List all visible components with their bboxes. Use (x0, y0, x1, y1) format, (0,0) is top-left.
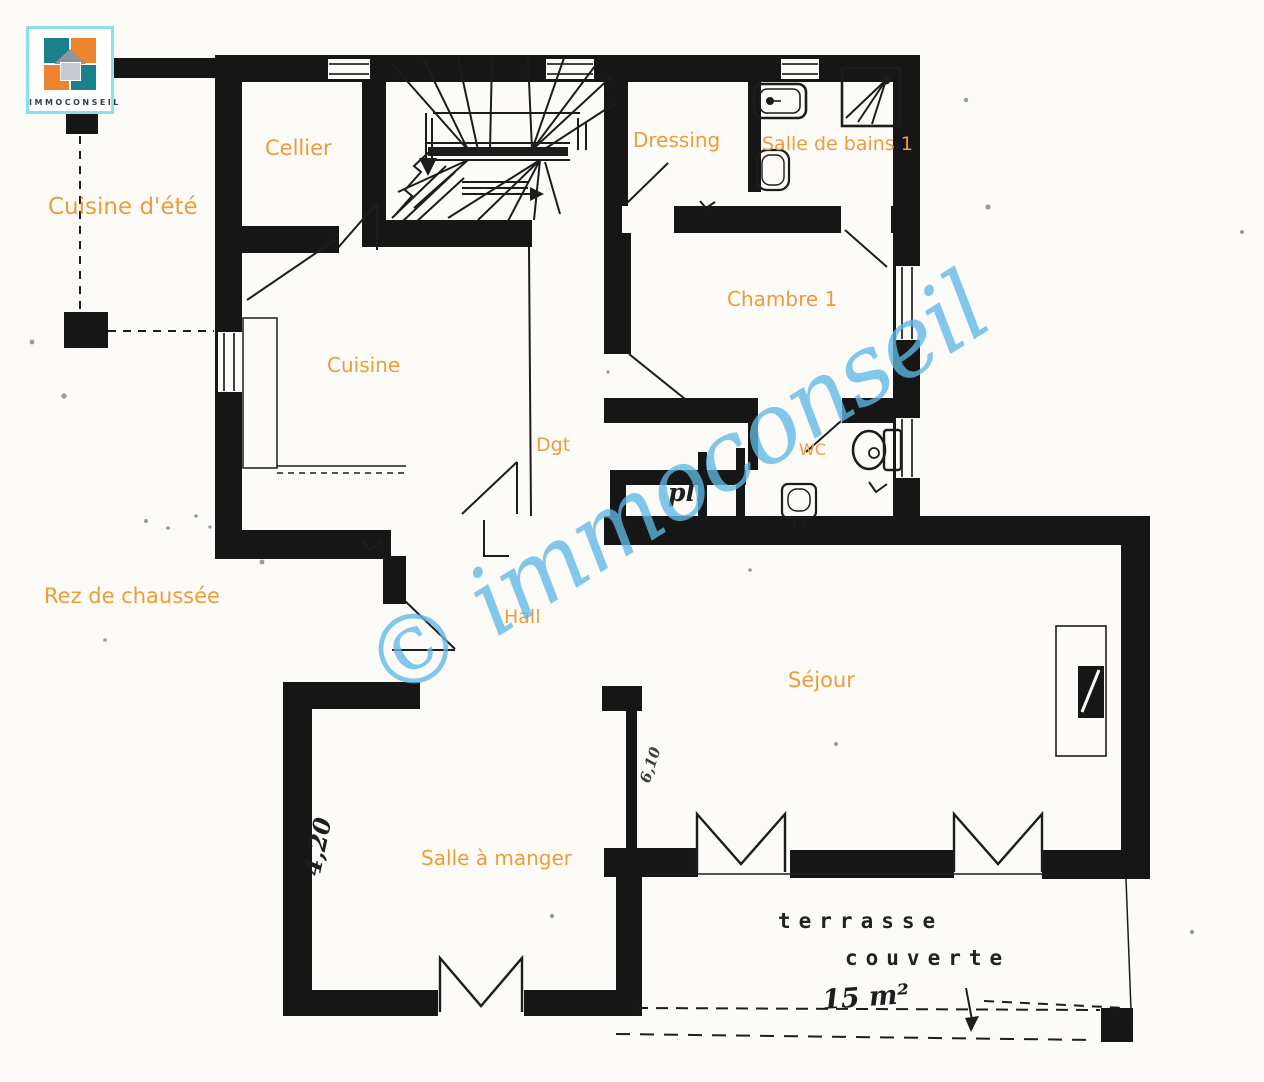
logo-house-body-icon (60, 62, 81, 81)
room-label-salle-de-bains: Salle de bains 1 (762, 133, 913, 155)
terrace-label-line1: terrasse (778, 909, 943, 933)
fireplace-icon (1056, 626, 1106, 756)
stair-arrow-down (419, 158, 437, 176)
room-label-cuisine-ete: Cuisine d'été (48, 194, 198, 220)
room-label-dgt: Dgt (536, 434, 570, 456)
kitchen-counter (243, 318, 277, 468)
room-label-cellier: Cellier (265, 136, 332, 160)
area-arrow (966, 988, 972, 1020)
floor-label: Rez de chaussée (44, 584, 220, 608)
terrace-area-note: 15 m² (821, 979, 910, 1016)
door-swing-chambre (629, 354, 685, 399)
door-tick (869, 482, 887, 492)
area-arrow-head (965, 1016, 979, 1032)
french-window-icons (440, 814, 1042, 1012)
door-swing-dressing (626, 163, 668, 204)
bathtub-icon (754, 84, 806, 118)
corridor-partition (529, 247, 531, 516)
staircase-icon (392, 58, 614, 223)
room-label-dressing: Dressing (633, 128, 720, 152)
washbasin-icon (757, 150, 789, 190)
door-swing-cuisine (462, 462, 517, 514)
room-label-chambre-1: Chambre 1 (727, 287, 837, 311)
room-label-cuisine: Cuisine (327, 353, 400, 377)
terrace-label-line2: couverte (845, 946, 1010, 970)
room-label-sejour: Séjour (788, 668, 855, 692)
door-swing-bains (845, 230, 887, 267)
immoconseil-logo: IMMOCONSEIL (26, 26, 114, 114)
room-label-salle-a-manger: Salle à manger (421, 846, 572, 870)
brand-name: IMMOCONSEIL (29, 98, 111, 107)
floor-plan-page: IMMOCONSEIL Cuisine d'été Cellier Dressi… (0, 0, 1264, 1082)
